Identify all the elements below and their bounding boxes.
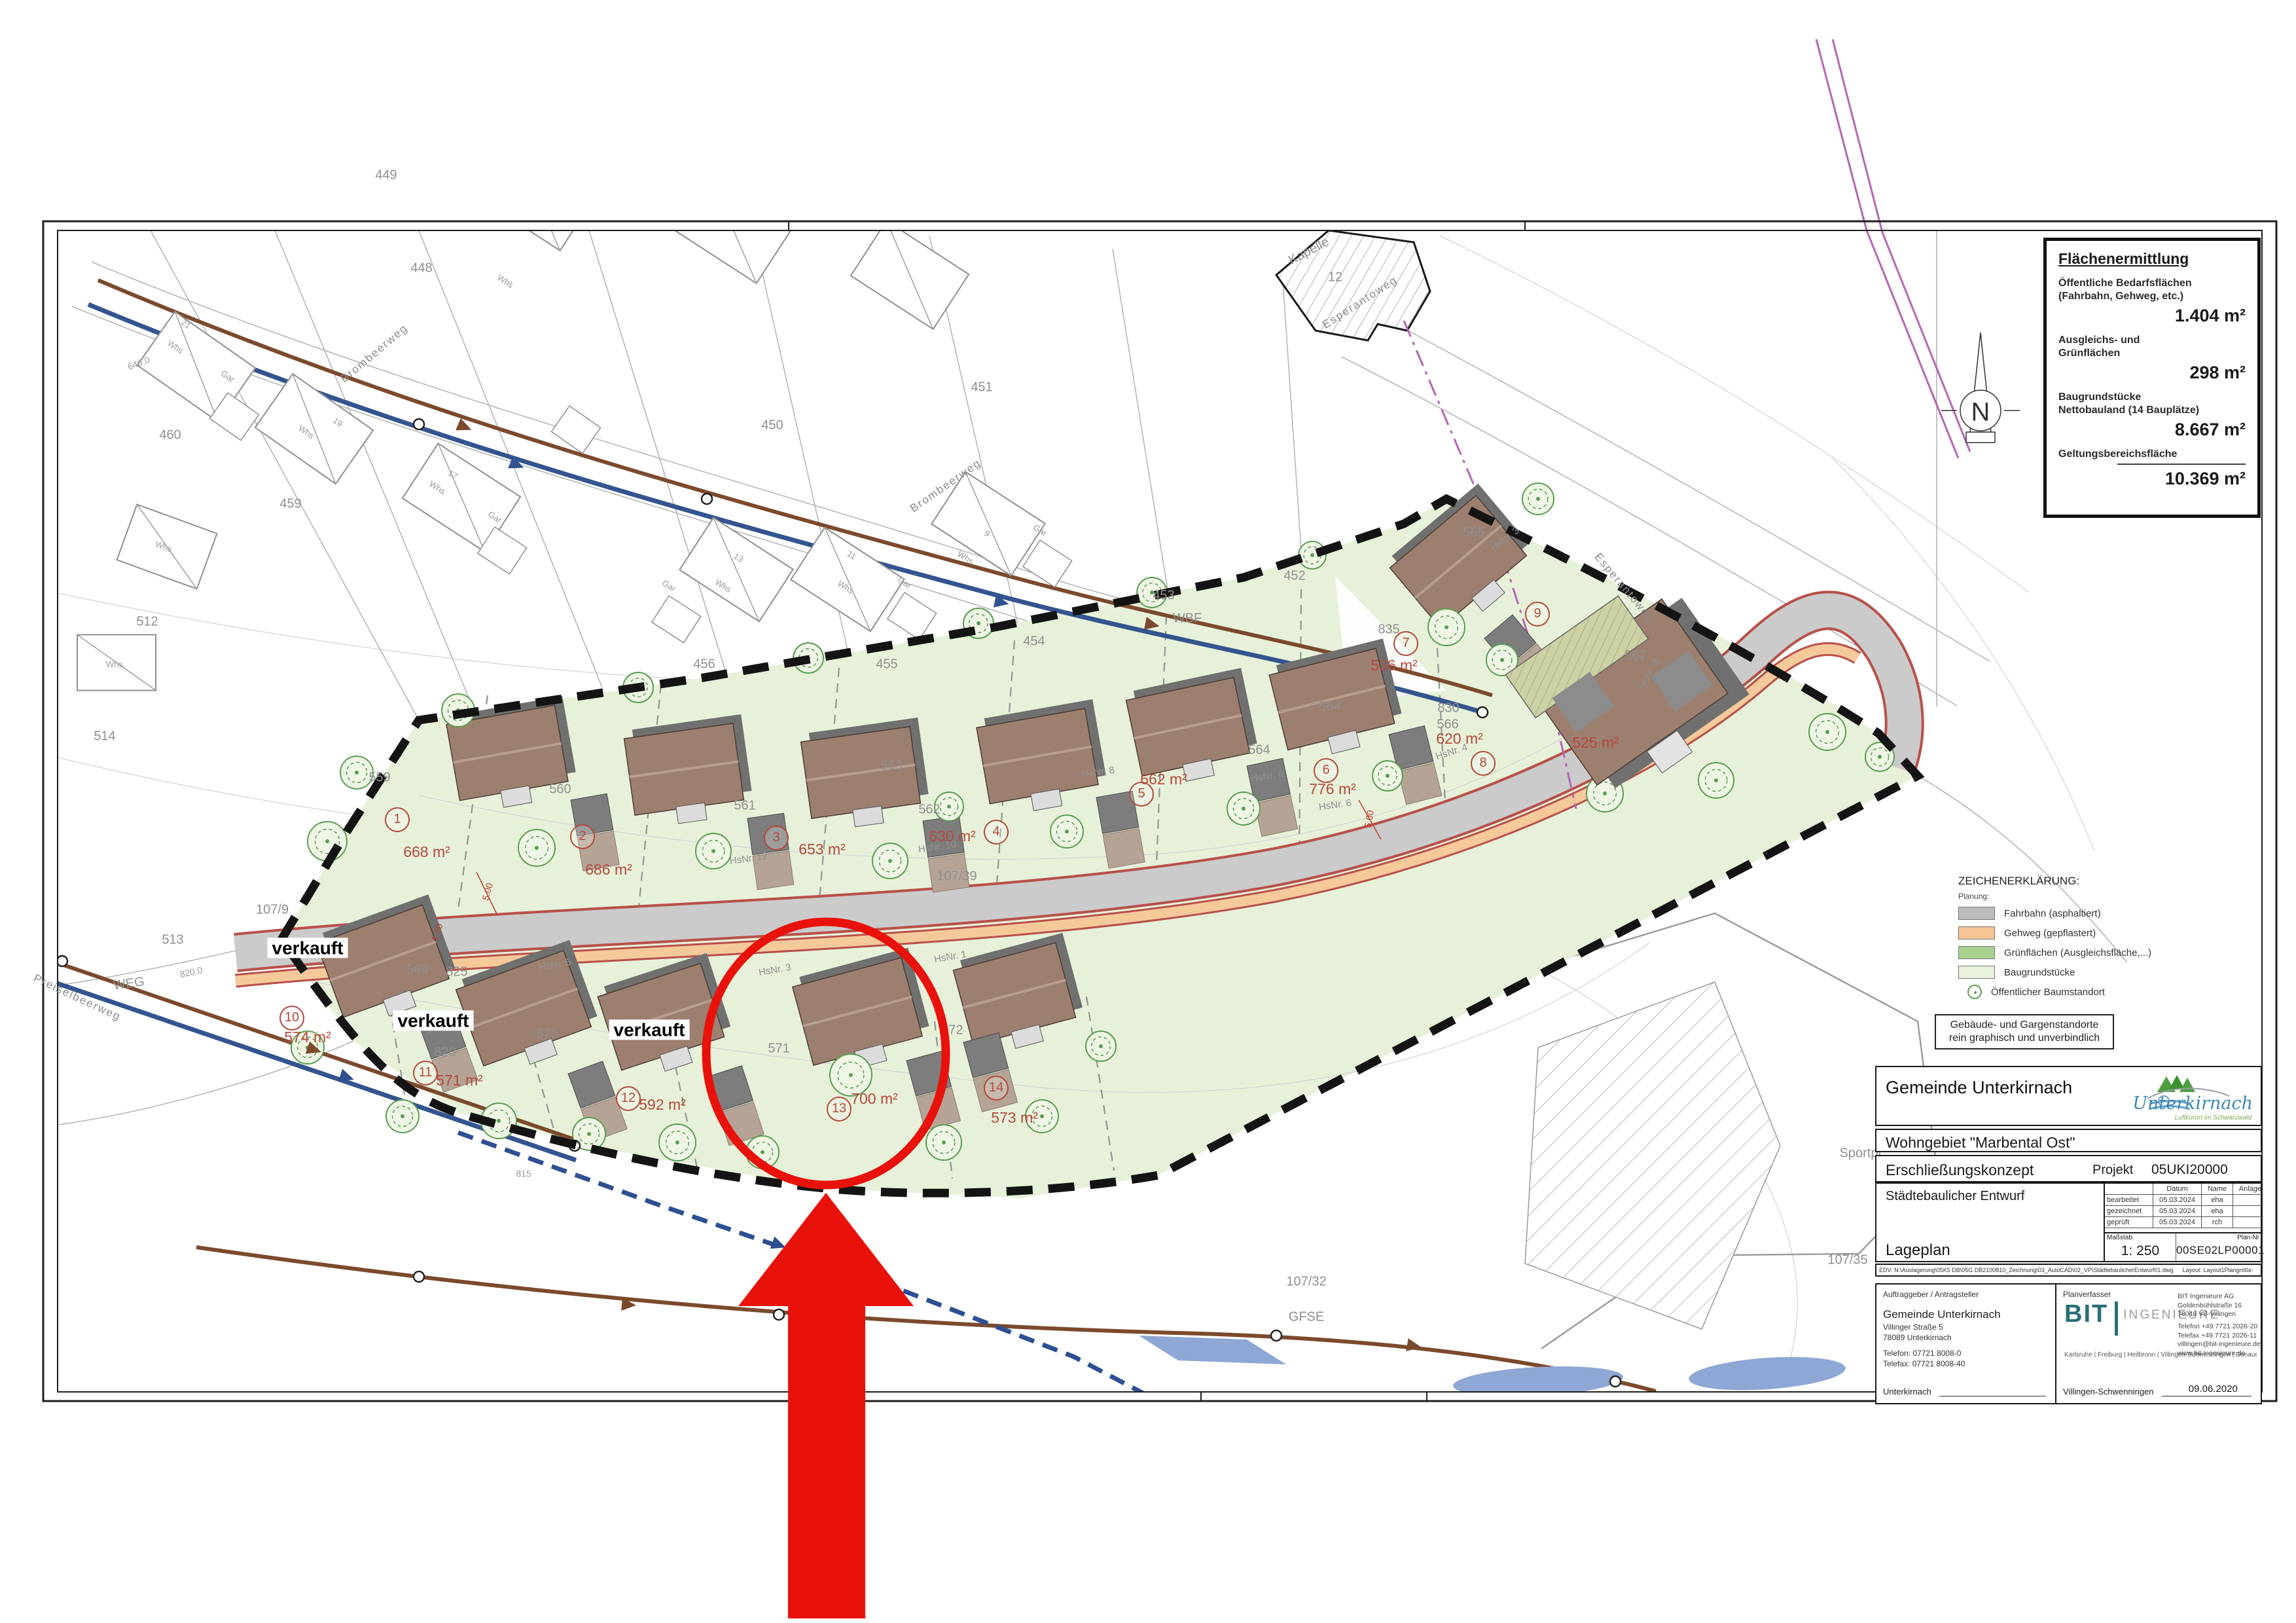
map-label: WBF xyxy=(1173,612,1202,626)
auftraggeber-line: Telefon: 07721 8008-0 xyxy=(1883,1349,2055,1358)
signature-line xyxy=(1939,1387,2046,1396)
planverfasser-cities: Karlsruhe | Freiburg | Heilbronn | Villi… xyxy=(2064,1351,2257,1359)
table-cell: geprüft xyxy=(2105,1217,2153,1228)
legend-swatch xyxy=(1958,946,1995,959)
signature-line: 09.06.2020 xyxy=(2162,1387,2251,1396)
flaechenermittlung-item: Öffentliche Bedarfsflächen (Fahrbahn, Ge… xyxy=(2058,277,2246,326)
bit-logo-bar xyxy=(2115,1302,2118,1336)
map-label: 561 xyxy=(734,799,755,813)
map-label: 563 xyxy=(880,759,902,773)
planverfasser-signature: Villingen-Schwenningen 09.06.2020 xyxy=(2063,1387,2251,1396)
plot-area: 668 m² xyxy=(403,844,450,860)
flaechenermittlung-title: Flächenermittlung xyxy=(2058,250,2246,268)
flaechen-value: 1.404 m² xyxy=(2058,306,2246,326)
map-label: 107/35 xyxy=(1827,1254,1867,1267)
wohngebiet-row: Wohngebiet "Marbental Ost" xyxy=(1875,1129,2262,1152)
plot-number: 3 xyxy=(764,826,789,850)
map-label: 514 xyxy=(94,730,115,744)
table-cell xyxy=(2233,1217,2263,1228)
flaechen-label: Öffentliche Bedarfsflächen (Fahrbahn, Ge… xyxy=(2058,277,2246,303)
edv-path: EDV: N:\Auslagerung\05K5 DB\05G DB210081… xyxy=(1879,1267,2173,1273)
verkauft-label: verkauft xyxy=(609,1019,690,1040)
plot-area: 536 m² xyxy=(1371,657,1418,673)
map-label: 450 xyxy=(761,419,783,433)
plot-area: 776 m² xyxy=(1309,781,1356,797)
legend-swatch xyxy=(1958,966,1995,979)
flaechen-value: 10.369 m² xyxy=(2117,464,2246,489)
map-label: 107/9 xyxy=(256,903,289,917)
map-label: 570 xyxy=(536,1028,558,1042)
map-label: 453 xyxy=(1153,589,1174,603)
plot-area: 573 m² xyxy=(991,1110,1038,1125)
table-cell: eha xyxy=(2202,1206,2233,1216)
konzept-row: Erschließungskonzept Projekt 05UKI20000 xyxy=(1875,1155,2262,1182)
entwurf-title: Städtebaulicher Entwurf xyxy=(1886,1189,2024,1204)
legend-item: Baugrundstücke xyxy=(1958,965,2142,979)
legend-item: Öffentlicher Baumstandort xyxy=(1958,985,2142,999)
plot-number: 11 xyxy=(413,1061,438,1085)
plot-number: 10 xyxy=(279,1006,304,1030)
table-cell: Datum xyxy=(2153,1184,2202,1194)
plannr-value: 00SE02LP00001 xyxy=(2176,1244,2262,1257)
plot-number: 7 xyxy=(1393,631,1418,656)
map-label: 567 xyxy=(1624,649,1646,663)
flaechenermittlung-box: Flächenermittlung Öffentliche Bedarfsflä… xyxy=(2043,238,2261,518)
table-cell: 05.03.2024 xyxy=(2153,1206,2202,1216)
map-label: 572 xyxy=(941,1024,963,1038)
map-label: 564 xyxy=(1248,744,1270,757)
map-label: 513 xyxy=(162,934,183,947)
planverfasser-line: villingen@bit-ingenieure.de xyxy=(2178,1340,2261,1349)
map-label: 459 xyxy=(279,498,301,511)
plangroesse-label: Plangröße: xyxy=(2225,1267,2253,1273)
legend-item: Gehweg (gepflastert) xyxy=(1958,926,2142,940)
table-cell: eha xyxy=(2202,1195,2233,1205)
planverfasser-line: Telefon +49 7721 2026-20 xyxy=(2178,1322,2261,1332)
map-label: 448 xyxy=(410,262,432,276)
table-cell xyxy=(2105,1184,2153,1194)
auftraggeber-signature: Unterkirnach xyxy=(1883,1387,2046,1396)
flaechenermittlung-item: Baugrundstücke Nettobauland (14 Bauplätz… xyxy=(2058,391,2246,440)
plot-area: 620 m² xyxy=(1436,731,1483,746)
auftraggeber-header: Auftraggeber / Antragsteller xyxy=(1883,1290,2055,1299)
plot-area: 525 m² xyxy=(1572,735,1619,750)
plot-area: 686 m² xyxy=(585,862,632,877)
table-cell: rch xyxy=(2202,1217,2233,1228)
map-label: 449 xyxy=(375,169,397,183)
plot-number: 4 xyxy=(984,820,1009,845)
logo-tagline: Luftkurort im Schwarzwald xyxy=(2175,1114,2251,1122)
projekt-label: Projekt xyxy=(2092,1163,2133,1178)
map-label: 12 xyxy=(1328,271,1342,285)
auftraggeber-block: Auftraggeber / Antragsteller Gemeinde Un… xyxy=(1876,1285,2056,1403)
plot-area: 574 m² xyxy=(284,1029,331,1045)
edv-row: EDV: N:\Auslagerung\05K5 DB\05G DB210081… xyxy=(1875,1264,2262,1277)
massstab-label: Maßstab xyxy=(2105,1233,2176,1242)
auftraggeber-line: 78089 Unterkirnach xyxy=(1883,1333,2055,1342)
konzept-title: Erschließungskonzept xyxy=(1886,1161,2034,1179)
map-label: 560 xyxy=(549,783,571,797)
tree-icon xyxy=(1967,985,1982,999)
plot-number: 8 xyxy=(1471,751,1496,776)
auftraggeber-line: Telefax: 07721 8008-40 xyxy=(1883,1359,2055,1368)
table-cell: Name xyxy=(2202,1184,2233,1194)
flaechen-value: 8.667 m² xyxy=(2058,420,2246,440)
planverfasser-line: 78048 VS-Villingen xyxy=(2178,1310,2261,1319)
bit-logo-main: BIT xyxy=(2064,1302,2108,1326)
flaechen-label: Geltungsbereichsfläche xyxy=(2058,448,2246,461)
plot-number: 2 xyxy=(570,824,595,849)
flaechen-value: 298 m² xyxy=(2058,363,2246,383)
auftraggeber-line xyxy=(1876,1342,2055,1347)
unterkirnach-logo: Unterkirnach Luftkurort im Schwarzwald xyxy=(2144,1070,2255,1125)
legend-item: Grünflächen (Ausgleichsfläche,...) xyxy=(1958,945,2142,960)
north-arrow-letter: N xyxy=(1971,398,1990,428)
plot-number: 14 xyxy=(984,1076,1009,1101)
gemeinde-title: Gemeinde Unterkirnach xyxy=(1886,1078,2072,1098)
legend-note: Gebäude- und Gargenstandorte rein graphi… xyxy=(1935,1014,2114,1049)
massstab-value: 1: 250 xyxy=(2105,1243,2176,1259)
flaechenermittlung-item: Ausgleichs- und Grünflächen298 m² xyxy=(2058,334,2246,383)
legend-title: ZEICHENERKLÄRUNG: xyxy=(1958,875,2142,888)
flaechenermittlung-item: Geltungsbereichsfläche10.369 m² xyxy=(2058,448,2246,489)
plot-area: 592 m² xyxy=(639,1097,686,1112)
projekt-number: 05UKI20000 xyxy=(2151,1162,2228,1178)
plot-area: 630 m² xyxy=(929,828,976,844)
flaechen-label: Baugrundstücke Nettobauland (14 Bauplätz… xyxy=(2058,391,2246,417)
auftraggeber-name: Gemeinde Unterkirnach xyxy=(1883,1308,2055,1321)
planverfasser-line: BIT Ingenieure AG xyxy=(2178,1292,2261,1302)
map-label: 820 xyxy=(434,1046,456,1060)
table-cell: 05.03.2024 xyxy=(2153,1217,2202,1228)
entwurf-row: Städtebaulicher Entwurf Lageplan DatumNa… xyxy=(1875,1182,2262,1262)
map-label: 454 xyxy=(1023,635,1045,649)
table-cell: Anlage xyxy=(2233,1184,2263,1194)
logo-name: Unterkirnach xyxy=(2132,1093,2253,1114)
edv-layout: Layout: Layout1 xyxy=(2182,1267,2224,1273)
map-label: 455 xyxy=(876,658,897,672)
plot-area: 571 m² xyxy=(436,1072,483,1088)
plot-number: 6 xyxy=(1314,758,1338,783)
zeichenerklaerung-legend: ZEICHENERKLÄRUNG: Planung: Fahrbahn (asp… xyxy=(1958,875,2142,1004)
auftraggeber-sig-place: Unterkirnach xyxy=(1883,1387,1931,1396)
map-label: Whs xyxy=(106,660,123,669)
verkauft-label: verkauft xyxy=(393,1010,474,1030)
table-cell xyxy=(2233,1206,2263,1216)
map-label: 559 xyxy=(368,771,390,785)
plan-sheet: BrombeerwegBrombeerwegEsperantowegEspera… xyxy=(0,0,2296,1623)
legend-swatch xyxy=(1958,907,1995,920)
map-label: 565 xyxy=(1463,526,1484,540)
map-label: 562 xyxy=(918,803,940,817)
lageplan-title: Lageplan xyxy=(1886,1241,1950,1260)
plot-area: 700 m² xyxy=(851,1091,898,1106)
planverfasser-address: BIT Ingenieure AGGoldenbühlstraße 167804… xyxy=(2178,1292,2261,1358)
legend-subtitle: Planung: xyxy=(1958,892,2142,901)
planverfasser-line: Telefax +49 7721 2026-11 xyxy=(2178,1332,2261,1341)
map-label: 107/32 xyxy=(1286,1275,1326,1289)
map-label: 830 xyxy=(1437,702,1459,716)
flaechen-label: Ausgleichs- und Grünflächen xyxy=(2058,334,2246,360)
legend-item: Fahrbahn (asphaltiert) xyxy=(1958,906,2142,921)
plannr-cell: Plan-Nr 00SE02LP00001 xyxy=(2176,1232,2262,1262)
map-label: GFSE xyxy=(1289,1311,1324,1324)
wohngebiet-title: Wohngebiet "Marbental Ost" xyxy=(1886,1134,2075,1152)
plot-number: 1 xyxy=(385,807,410,832)
planverfasser-block: Planverfasser BIT INGENIEURE BIT Ingenie… xyxy=(2056,1285,2261,1403)
legend-label: Öffentlicher Baumstandort xyxy=(1991,987,2105,998)
map-label: 512 xyxy=(136,615,158,629)
map-label: 456 xyxy=(693,658,715,672)
map-label: 107/39 xyxy=(937,870,977,884)
map-label: 564 xyxy=(1319,701,1340,714)
title-block-header: Gemeinde Unterkirnach Unterkirnach Luftk… xyxy=(1875,1066,2262,1126)
table-cell: bearbeitet xyxy=(2105,1195,2153,1205)
plot-area: 653 m² xyxy=(798,841,846,857)
plot-area: 662 m² xyxy=(1140,771,1187,787)
table-cell: gezeichnet xyxy=(2105,1206,2153,1216)
planverfasser-line: Goldenbühlstraße 16 xyxy=(2178,1302,2261,1311)
legend-label: Baugrundstücke xyxy=(2004,967,2075,978)
legend-label: Gehweg (gepflastert) xyxy=(2004,928,2096,939)
table-cell xyxy=(2233,1195,2263,1205)
plannr-label: Plan-Nr xyxy=(2176,1233,2262,1242)
table-cell: 05.03.2024 xyxy=(2153,1195,2202,1205)
parties-row: Auftraggeber / Antragsteller Gemeinde Un… xyxy=(1875,1283,2262,1404)
map-label: 452 xyxy=(1283,570,1305,583)
legend-swatch xyxy=(1958,926,1995,939)
map-label: 569 xyxy=(406,964,428,977)
map-label: 815 xyxy=(516,1169,531,1179)
massstab-cell: Maßstab 1: 250 xyxy=(2104,1232,2176,1262)
map-label: 571 xyxy=(768,1042,789,1056)
planverfasser-sig-date: 09.06.2020 xyxy=(2189,1383,2238,1395)
planverfasser-sig-place: Villingen-Schwenningen xyxy=(2063,1387,2154,1396)
plot-number: 13 xyxy=(827,1097,852,1122)
legend-label: Fahrbahn (asphaltiert) xyxy=(2004,908,2101,919)
map-label: 451 xyxy=(971,381,992,395)
plot-number: 12 xyxy=(616,1086,641,1111)
verkauft-label: verkauft xyxy=(268,938,348,958)
legend-label: Grünflächen (Ausgleichsfläche,...) xyxy=(2004,947,2151,958)
plot-number: 9 xyxy=(1525,602,1550,627)
auftraggeber-line: Villinger Straße 5 xyxy=(1883,1322,2055,1332)
map-label: 825 xyxy=(446,966,467,979)
map-label: 460 xyxy=(159,429,181,443)
